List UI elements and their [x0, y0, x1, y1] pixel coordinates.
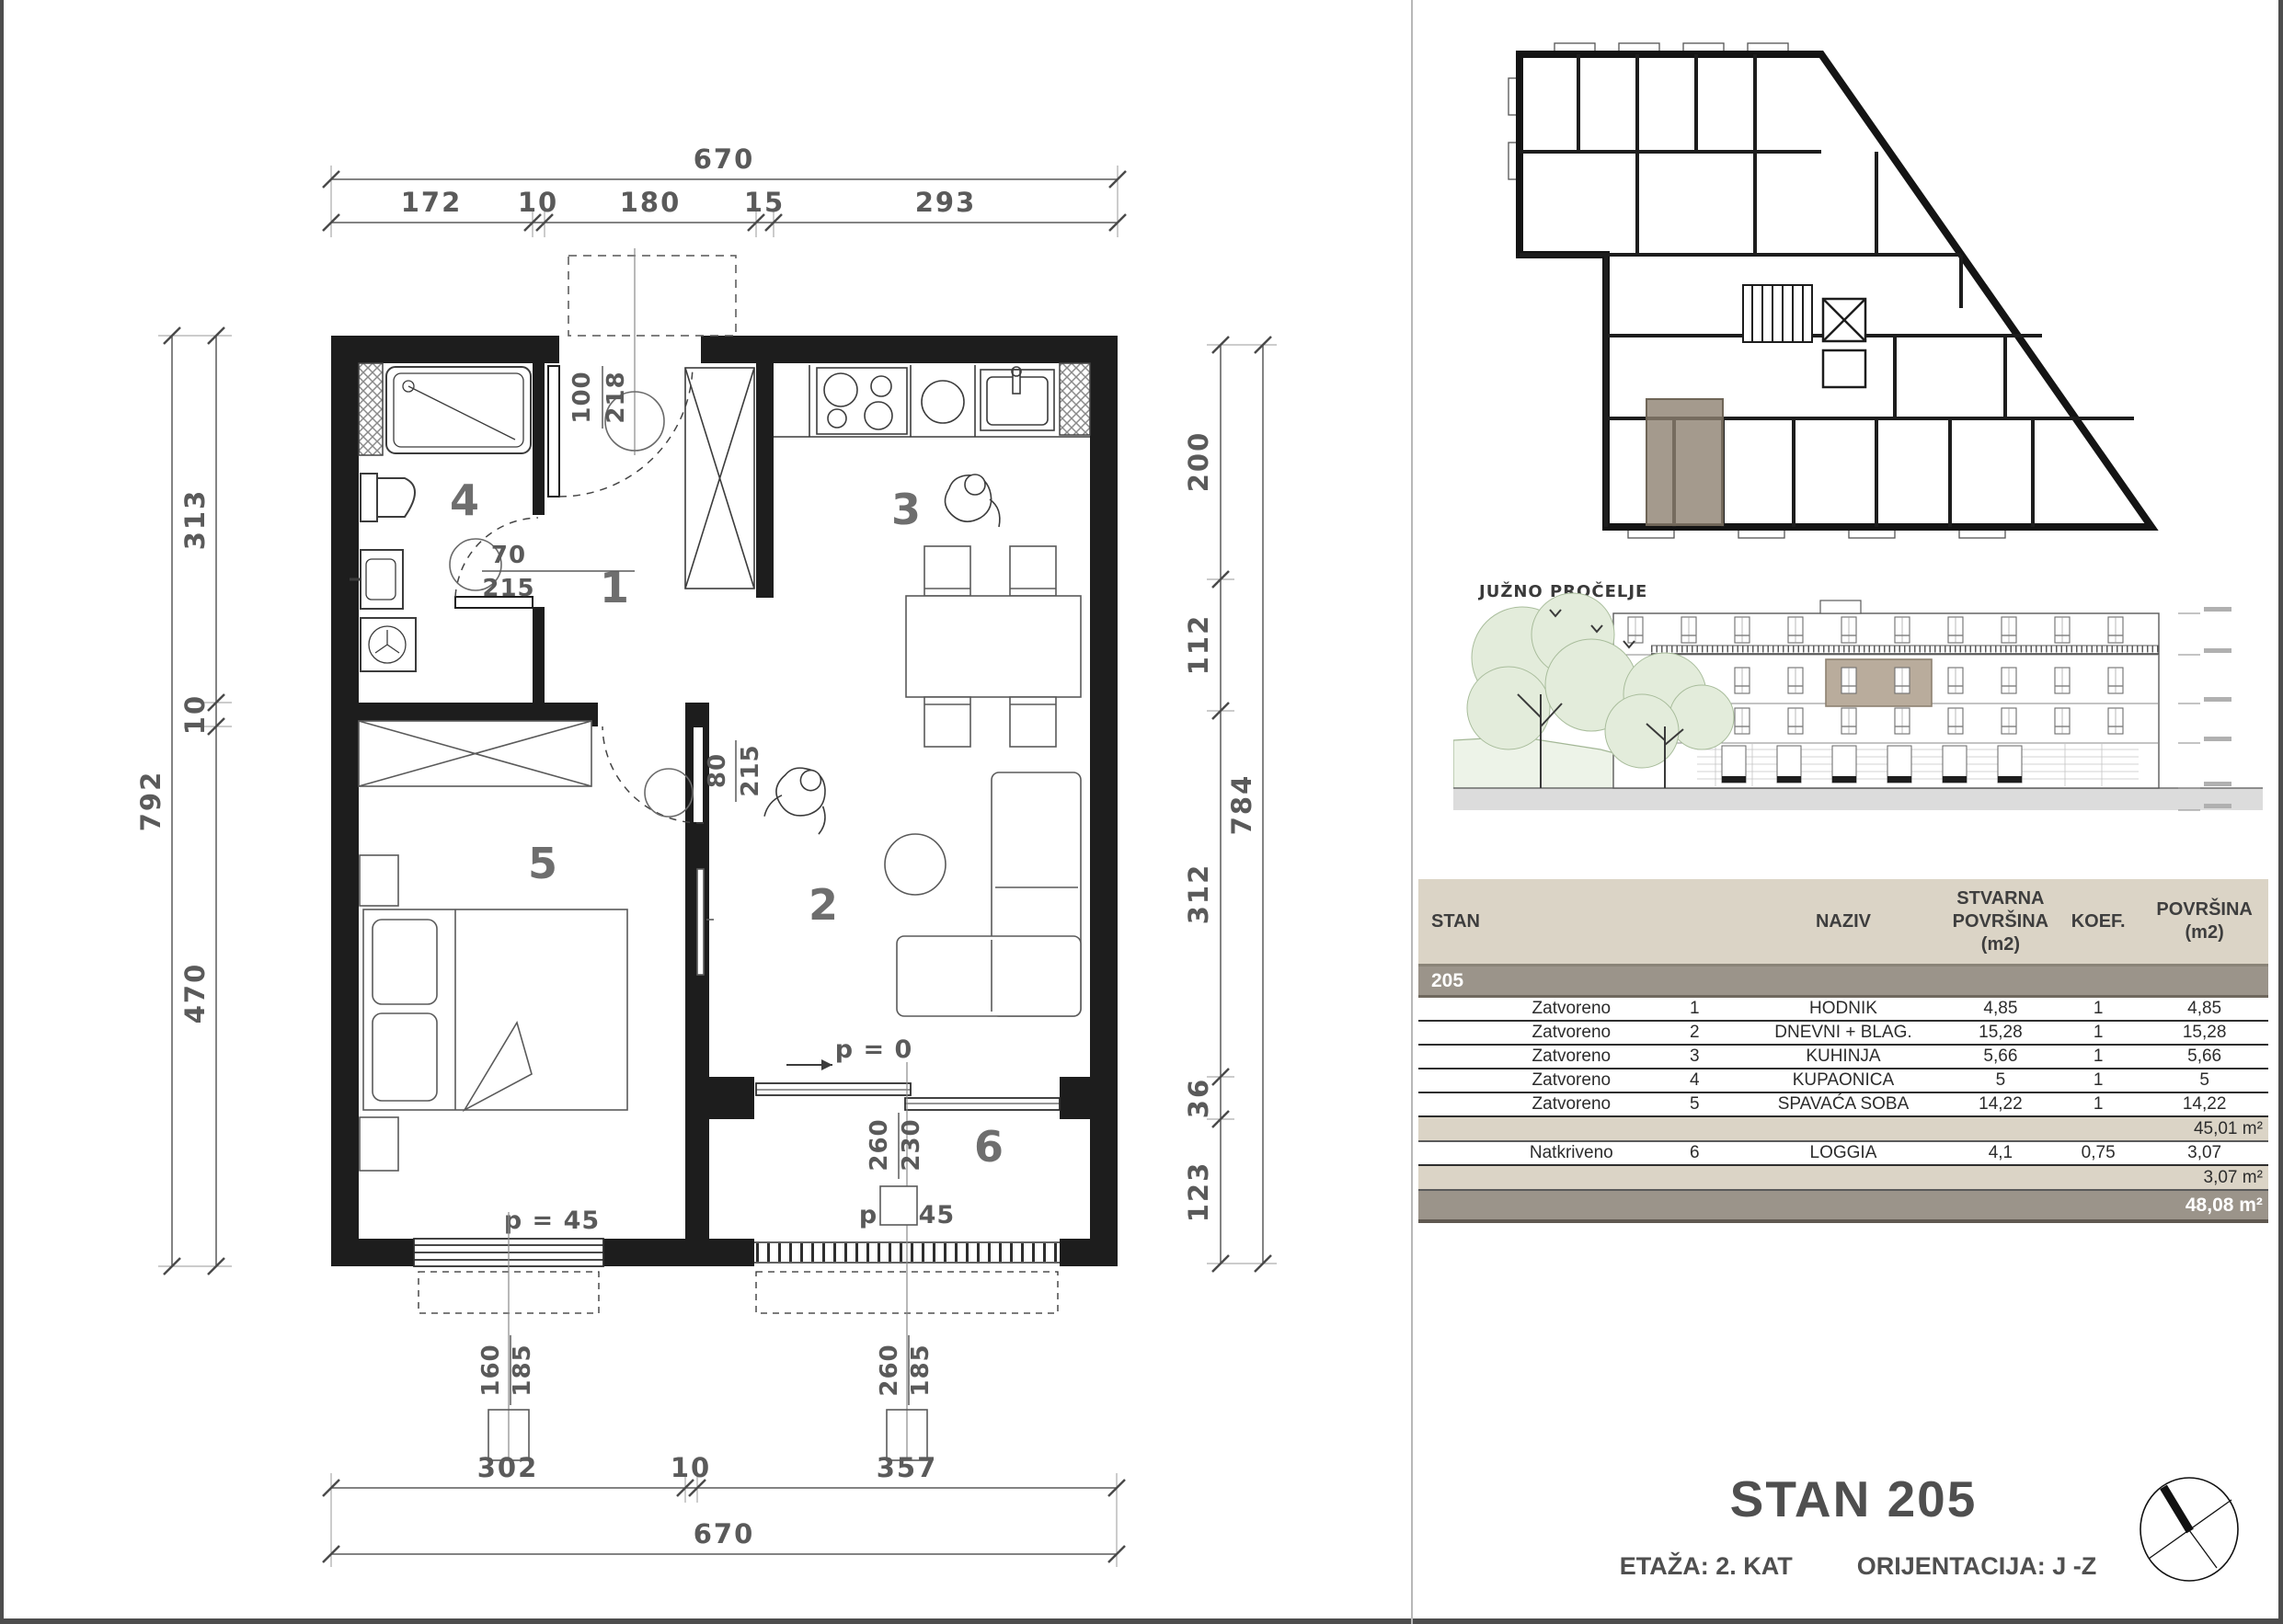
svg-text:100: 100	[568, 371, 596, 423]
shaft-hatch-kitchen	[1060, 363, 1090, 435]
person-icon	[945, 475, 999, 527]
col-header-stvarna: STVARNA POVRŠINA (m2)	[1945, 887, 2056, 956]
toilet-bowl	[377, 478, 415, 517]
coffee-table	[885, 834, 946, 895]
svg-text:80: 80	[704, 753, 731, 788]
dim-bottom-0: 302	[477, 1452, 539, 1483]
dim-right-0: 200	[1183, 431, 1214, 493]
subtotal-covered-row: 3,07 m²	[1418, 1166, 2268, 1191]
bedroom-wardrobe	[359, 721, 591, 786]
panel-divider	[1411, 0, 1413, 1624]
dim-bottom-2: 357	[877, 1452, 938, 1483]
unit-number-band: 205	[1418, 966, 2268, 998]
svg-text:185: 185	[509, 1344, 536, 1396]
dining-set	[906, 546, 1081, 747]
dim-right-2: 312	[1183, 863, 1214, 925]
total-area: 48,08 m²	[2140, 1195, 2268, 1217]
hall-wardrobe	[685, 368, 754, 589]
svg-text:260: 260	[866, 1118, 893, 1171]
bedroom-furniture	[359, 721, 627, 1171]
dim-right-3: 36	[1183, 1078, 1214, 1118]
svg-text:230: 230	[898, 1118, 925, 1171]
sheet-border-bottom	[0, 1618, 2283, 1624]
orientation-label: ORIJENTACIJA: J -Z	[1857, 1552, 2097, 1581]
room-label-loggia: 6	[974, 1122, 1004, 1172]
dining-table	[906, 596, 1081, 697]
table-header-row: STAN NAZIV STVARNA POVRŠINA (m2) KOEF. P…	[1418, 879, 2268, 966]
dim-left-0: 313	[179, 489, 211, 551]
hob-single	[922, 381, 964, 423]
col-header-povrsina: POVRŠINA (m2)	[2140, 898, 2268, 944]
shaft-hatch-bath	[359, 363, 383, 455]
title-block: STAN 205	[1499, 1470, 2208, 1528]
col-header-koef: KOEF.	[2056, 910, 2140, 933]
subtotal-covered: 3,07 m²	[2140, 1168, 2268, 1188]
svg-text:p = 0: p = 0	[835, 1035, 913, 1064]
bedroom-door-label: 80 215	[704, 740, 764, 802]
compass-icon	[2125, 1467, 2263, 1600]
living-furniture	[697, 772, 1081, 1016]
subtitle-row: ETAŽA: 2. KAT ORIJENTACIJA: J -Z	[1564, 1552, 2152, 1581]
nightstand	[360, 1117, 398, 1171]
entrance-door-label: 100 218	[568, 366, 630, 429]
svg-text:260: 260	[876, 1344, 903, 1396]
kitchen-counter	[774, 365, 1090, 437]
pillow	[373, 920, 437, 1004]
dim-bottom-total: 670	[694, 1518, 755, 1550]
svg-text:70: 70	[491, 542, 526, 569]
stair-core	[1743, 285, 1812, 342]
balcony-sliding-door	[756, 1083, 1060, 1110]
table-row: Zatvoreno4 KUPAONICA5 15	[1418, 1069, 2268, 1093]
kitchen-sink-icon	[981, 367, 1054, 430]
dim-top-total: 670	[694, 143, 755, 175]
balcony-door-label: p = 0 260 230	[786, 1035, 925, 1225]
room-label-living: 2	[809, 880, 838, 930]
highlighted-unit	[1646, 399, 1723, 525]
roof-access	[1820, 600, 1861, 613]
table-row: Zatvoreno1 HODNIK4,85 14,85	[1418, 998, 2268, 1022]
drawing-sheet: { "plan": { "rooms": { "hall": "1", "liv…	[0, 0, 2283, 1624]
dim-top-3: 15	[744, 187, 785, 218]
person-icon	[764, 761, 841, 837]
table-row: Zatvoreno3 KUHINJA5,66 15,66	[1418, 1046, 2268, 1069]
room-label-hall: 1	[600, 563, 629, 612]
dim-left-total: 792	[135, 771, 166, 832]
room-label-kitchen: 3	[891, 485, 921, 534]
subtotal-closed: 45,01 m²	[2140, 1119, 2268, 1139]
sofa-seat	[897, 936, 1081, 1016]
level-markers	[2178, 607, 2231, 810]
svg-text:215: 215	[482, 575, 534, 602]
floor-plan-drawing: 1 2 3 4 5 6 100 218 70 215 80 215 p = 45…	[0, 0, 1412, 1624]
svg-text:p = 45: p = 45	[504, 1207, 600, 1235]
dim-right-total: 784	[1226, 774, 1257, 836]
key-plan	[1490, 23, 2162, 552]
table-row: Natkriveno6 LOGGIA4,1 0,753,07	[1418, 1142, 2268, 1166]
dim-left-2: 470	[179, 963, 211, 1024]
dim-top-0: 172	[401, 187, 463, 218]
svg-text:160: 160	[477, 1344, 505, 1396]
nightstand	[360, 855, 398, 906]
svg-text:185: 185	[907, 1344, 935, 1396]
dim-right-4: 123	[1183, 1161, 1214, 1223]
shower-tray	[386, 367, 531, 453]
dim-right-1: 112	[1183, 614, 1214, 676]
svg-text:218: 218	[602, 371, 630, 423]
area-table: STAN NAZIV STVARNA POVRŠINA (m2) KOEF. P…	[1418, 879, 2268, 1223]
dim-left-1: 10	[179, 694, 211, 735]
sheet-border-left	[0, 0, 4, 1624]
svg-text:215: 215	[737, 744, 764, 796]
col-header-stan: STAN	[1418, 911, 1495, 932]
dim-top-1: 10	[518, 187, 558, 218]
dim-top-4: 293	[915, 187, 977, 218]
sheet-border-right	[2278, 0, 2283, 1624]
building-outline	[1520, 54, 2151, 527]
toilet-tank	[361, 474, 377, 521]
dim-top-2: 180	[620, 187, 682, 218]
sheet-title: STAN 205	[1499, 1470, 2208, 1528]
pillow	[373, 1013, 437, 1101]
room-label-bath: 4	[450, 475, 479, 525]
ground-band	[1453, 788, 2263, 810]
floor-label: ETAŽA: 2. KAT	[1620, 1552, 1793, 1581]
col-header-naziv: NAZIV	[1741, 910, 1945, 933]
unit-number: 205	[1418, 970, 1495, 992]
stove-icon	[817, 368, 907, 434]
table-row: Zatvoreno5 SPAVAĆA SOBA14,22 114,22	[1418, 1093, 2268, 1117]
subtotal-closed-row: 45,01 m²	[1418, 1117, 2268, 1142]
total-row: 48,08 m²	[1418, 1191, 2268, 1223]
south-elevation: JUŽNO PROČELJE	[1453, 556, 2263, 851]
dim-bottom-1: 10	[671, 1452, 711, 1483]
table-row: Zatvoreno2 DNEVNI + BLAG.15,28 115,28	[1418, 1022, 2268, 1046]
room-label-bedroom: 5	[528, 839, 557, 888]
